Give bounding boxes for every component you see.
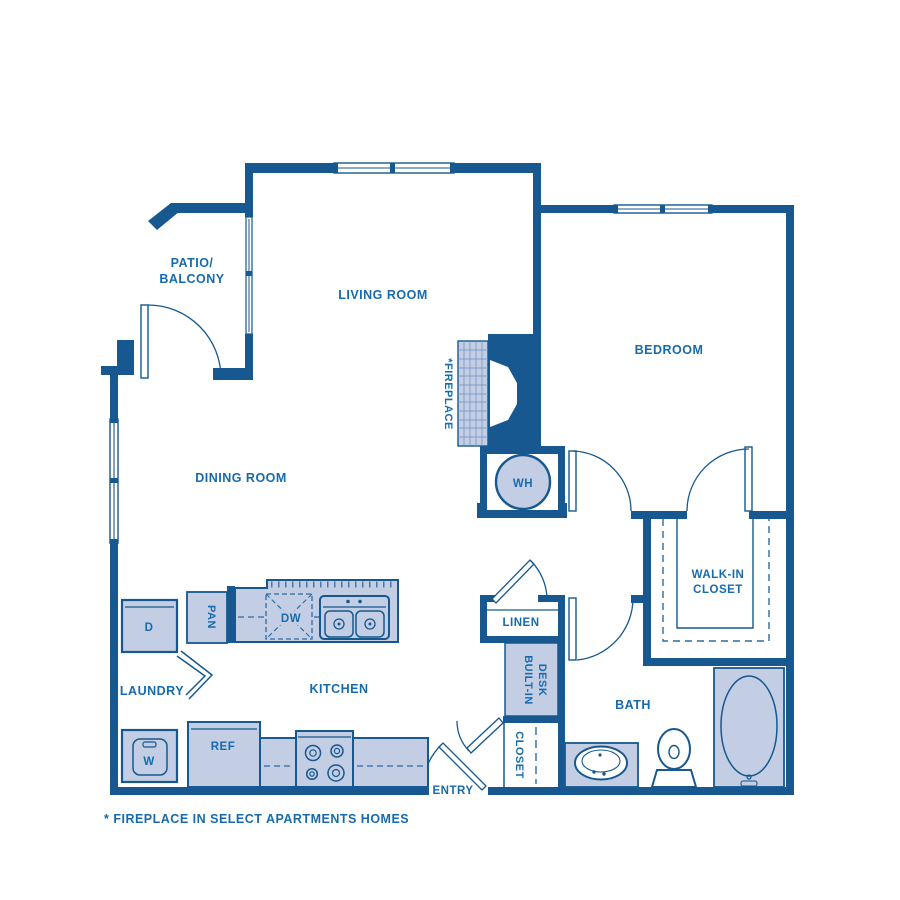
wall-linen-left [480, 595, 487, 643]
wall-east-column [558, 595, 565, 795]
label-linen: LINEN [503, 617, 540, 629]
refrigerator [188, 722, 260, 787]
fireplace-hearth [458, 341, 488, 446]
wall-wic-bottom [643, 658, 794, 666]
entry-closet-door [457, 718, 503, 753]
wall-bedroom-bottom-right [749, 511, 794, 519]
kitchen-fixtures [187, 580, 428, 787]
stove [296, 731, 353, 787]
patio-window [246, 217, 252, 334]
wall-patio-diagonal [148, 203, 180, 230]
label-patio-2: BALCONY [159, 272, 224, 286]
bath-door [569, 598, 633, 660]
wall-bedroom-top-left [533, 205, 614, 213]
label-entry: ENTRY [432, 785, 473, 797]
label-desk-1: BUILT-IN [522, 655, 534, 705]
walkin-closet-door [687, 447, 752, 511]
wall-bottom-right [488, 787, 794, 795]
bath-sink [575, 747, 627, 780]
wall-wh-bottom [477, 510, 567, 518]
wall-bedroom-top-right [712, 205, 794, 213]
patio-door [141, 305, 221, 378]
label-pantry: PAN [205, 605, 217, 629]
wall-wh-top [480, 446, 565, 454]
label-entry-closet: CLOSET [513, 731, 525, 779]
entry-door [423, 743, 486, 790]
wall-linen-bottom [480, 636, 565, 643]
label-dishwasher: DW [281, 613, 301, 625]
wall-closet-top [503, 716, 565, 723]
label-water-heater: WH [513, 478, 533, 490]
label-laundry: LAUNDRY [120, 684, 184, 698]
windows [110, 163, 712, 543]
bedroom-door [569, 451, 631, 511]
label-living-room: LIVING ROOM [338, 288, 428, 302]
label-walkin-1: WALK-IN [692, 569, 745, 581]
living-room-window [334, 163, 454, 173]
label-kitchen: KITCHEN [309, 682, 368, 696]
wall-bedroom-bottom-mid [631, 511, 687, 519]
floorplan-svg: PATIO/ BALCONY LIVING ROOM BEDROOM DININ… [0, 0, 900, 900]
wall-left-mid [110, 373, 118, 419]
label-desk-2: DESK [536, 664, 548, 697]
wall-patio-stub [101, 366, 134, 375]
wall-patio-top [171, 203, 248, 213]
bath-fixtures [565, 668, 784, 787]
wall-patio-bottom [213, 368, 248, 380]
footnote: * FIREPLACE IN SELECT APARTMENTS HOMES [104, 812, 409, 826]
label-fireplace: *FIREPLACE [442, 358, 454, 430]
wall-right [786, 205, 794, 795]
label-washer: W [143, 756, 154, 768]
bedroom-window [614, 205, 712, 213]
wall-wic-left [643, 511, 651, 666]
bathtub [714, 668, 784, 787]
floor-plan-page: PATIO/ BALCONY LIVING ROOM BEDROOM DININ… [0, 0, 900, 900]
dining-room-window [110, 419, 118, 543]
wall-living-top-left [245, 163, 334, 173]
wall-bath-stub [631, 595, 651, 603]
wall-left-lower [110, 543, 118, 795]
toilet [652, 729, 696, 787]
wall-living-top-right [454, 163, 541, 173]
label-walkin-2: CLOSET [693, 584, 743, 596]
label-refrigerator: REF [211, 741, 236, 753]
wall-living-bedroom-divider [533, 173, 541, 340]
label-dryer: D [145, 622, 154, 634]
wall-bottom-left [110, 787, 429, 795]
label-bath: BATH [615, 698, 651, 712]
label-dining-room: DINING ROOM [195, 471, 287, 485]
wall-pan-divider [227, 586, 235, 643]
label-bedroom: BEDROOM [635, 343, 704, 357]
kitchen-sink [320, 596, 389, 639]
label-patio-1: PATIO/ [171, 256, 214, 270]
